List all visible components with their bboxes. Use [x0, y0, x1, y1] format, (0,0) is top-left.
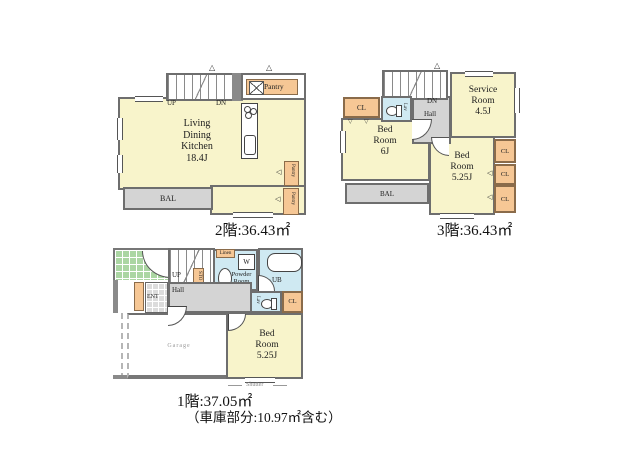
toilet-room-1f: Lav — [250, 291, 282, 313]
stairs-down-label: DN — [216, 99, 226, 107]
side-pantry-closet: Pantry — [283, 188, 299, 215]
service-room-label: Service Room 4.5J — [452, 85, 514, 118]
hall-label: Hall — [172, 286, 184, 294]
side-pantry-label: Pantry — [289, 192, 295, 205]
pantry-label: Pantry — [264, 83, 284, 92]
door-swing-icon: ▽ — [348, 119, 353, 125]
pantry-cabinet: Pantry — [246, 79, 298, 95]
hall-label: Hall — [424, 110, 436, 118]
refrigerator-icon — [249, 81, 264, 95]
balcony-2f: BAL — [123, 187, 213, 210]
window — [117, 118, 123, 140]
floor-plan-sheet: Pantry △ △ UP DN Living Dining Kitchen 1… — [0, 0, 620, 454]
sto-label: STO — [196, 271, 202, 280]
closet-3f: CL — [343, 97, 380, 118]
roof-vent-icon: △ — [434, 62, 440, 70]
linen-label: Linen — [217, 251, 234, 257]
door-swing-icon: ◁ — [487, 170, 492, 177]
balcony-3f: BAL — [345, 183, 429, 204]
garage-boundary-dashed — [121, 313, 123, 379]
lav-label: Lav — [401, 103, 407, 111]
closet-3f: CL — [494, 185, 516, 213]
bed6-label: Bed Room 6J — [353, 125, 417, 158]
closet-label: CL — [284, 298, 301, 305]
closet-label: CL — [496, 171, 514, 178]
washer-label: W — [239, 258, 254, 266]
floor-plan-1f: UP W Powder Room Linen UB STO Hall ENT L… — [110, 245, 310, 395]
stairs-up-label: UP — [167, 99, 176, 107]
toilet-icon — [261, 298, 277, 308]
door-swing-icon: ◁ — [275, 196, 280, 203]
bed-label: Bed Room 5.25J — [242, 329, 292, 362]
shutter-line — [228, 385, 242, 386]
floor-plan-3f: △ DN Service Room 4.5J CL ▽ ▽ Lav Hall B… — [340, 63, 545, 218]
balcony-label: BAL — [347, 190, 427, 198]
toilet-room-3f: Lav — [381, 96, 412, 122]
ent-label: ENT — [147, 294, 159, 301]
closet-3f: CL — [494, 139, 516, 163]
door-swing-icon: ◁ — [487, 194, 492, 201]
kitchen-sink — [244, 135, 256, 155]
floor-plan-2f: Pantry △ △ UP DN Living Dining Kitchen 1… — [113, 63, 313, 218]
shutter-label: Shutter — [246, 382, 263, 389]
floor1-subtitle: （車庫部分:10.97㎡含む） — [186, 406, 342, 426]
washing-machine: W — [238, 254, 255, 270]
closet-label: CL — [496, 148, 514, 155]
roof-vent-icon: △ — [266, 64, 272, 72]
floor3-title: 3階:36.43㎡ — [437, 219, 512, 240]
balcony-label: BAL — [125, 194, 211, 203]
shoe-cabinet — [134, 282, 144, 311]
wall — [113, 375, 127, 379]
ub-label: UB — [272, 276, 282, 284]
linen-closet: Linen — [216, 249, 235, 258]
window — [465, 71, 493, 77]
closet-1f: CL — [282, 291, 303, 313]
bathtub-icon — [267, 253, 302, 272]
window — [117, 155, 123, 173]
side-pantry-closet: Pantry — [284, 161, 299, 186]
closet-label: CL — [345, 104, 378, 112]
side-pantry-label: Pantry — [289, 164, 295, 177]
closet-3f: CL — [494, 164, 516, 185]
ldk-label: Living Dining Kitchen 18.4J — [161, 118, 233, 164]
roof-vent-icon: △ — [209, 64, 215, 72]
bed525-label: Bed Room 5.25J — [434, 151, 490, 184]
door-swing-icon: ◁ — [276, 169, 281, 176]
window — [233, 212, 273, 218]
stove-burner-icon — [245, 112, 252, 119]
shutter-line — [273, 385, 287, 386]
toilet-tank — [271, 298, 277, 310]
garage-label: Garage — [159, 343, 199, 350]
staircase-2f — [166, 73, 236, 101]
floor2-title: 2階:36.43㎡ — [215, 219, 290, 240]
wall — [113, 280, 118, 313]
window — [340, 131, 346, 153]
room-pantry: Pantry — [241, 73, 306, 100]
window — [514, 88, 520, 113]
lav-label: Lav — [254, 296, 260, 304]
toilet-icon — [386, 105, 402, 115]
stairs-up-label: UP — [172, 271, 181, 279]
kitchen-island — [241, 103, 258, 159]
stairs-down-label: DN — [427, 97, 437, 105]
window — [135, 96, 163, 102]
closet-label: CL — [496, 196, 514, 203]
